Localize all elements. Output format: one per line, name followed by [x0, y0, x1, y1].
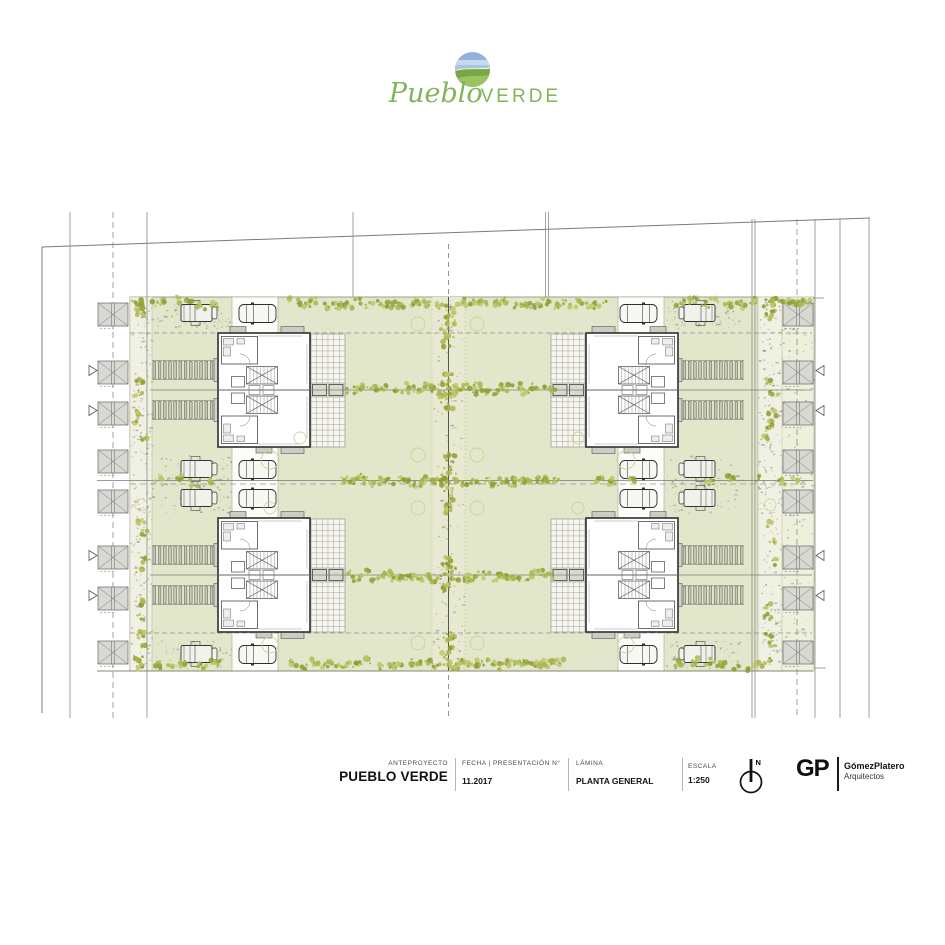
- site-plan-drawing: [0, 0, 945, 945]
- parked-car: [239, 488, 276, 510]
- patio-grid: [311, 334, 345, 447]
- firm-logo-divider: [837, 757, 839, 791]
- garage-bay: [783, 450, 813, 476]
- scale-label: ESCALA: [688, 763, 717, 770]
- parked-car: [239, 644, 276, 666]
- garage-bay: [783, 546, 813, 572]
- parked-car: [620, 459, 657, 481]
- parked-car: [620, 488, 657, 510]
- parked-car: [620, 303, 657, 325]
- titleblock-divider: [682, 758, 683, 791]
- garage-bay: [98, 641, 128, 667]
- north-arrow-icon: N: [733, 752, 773, 796]
- garage-bay: [98, 402, 128, 428]
- parked-car: [620, 644, 657, 666]
- garage-bay: [783, 402, 813, 428]
- date-label: FECHA | PRESENTACIÓN N°: [462, 760, 560, 767]
- garage-bay: [98, 450, 128, 476]
- project-type-label: ANTEPROYECTO: [388, 760, 448, 767]
- parked-car: [239, 459, 276, 481]
- firm-subtitle: Arquitectos: [844, 772, 884, 781]
- titleblock-divider: [568, 758, 569, 791]
- parked-car: [239, 303, 276, 325]
- garage-bay: [783, 641, 813, 667]
- garage-bay: [783, 361, 813, 387]
- garage-bay: [98, 361, 128, 387]
- firm-logo: GP: [796, 755, 829, 783]
- sheet-label: LÁMINA: [576, 760, 603, 767]
- date-value: 11.2017: [462, 776, 492, 786]
- garage-bay: [98, 303, 128, 329]
- patio-grid: [551, 519, 585, 632]
- patio-grid: [311, 519, 345, 632]
- project-name: PUEBLO VERDE: [339, 769, 448, 784]
- north-label: N: [756, 758, 761, 767]
- garage-bay: [783, 490, 813, 516]
- garage-bay: [98, 546, 128, 572]
- sheet-name: PLANTA GENERAL: [576, 776, 653, 786]
- garage-bay: [783, 587, 813, 613]
- firm-name: GómezPlatero: [844, 761, 905, 771]
- scale-value: 1:250: [688, 775, 710, 785]
- titleblock-divider: [455, 758, 456, 791]
- garage-bay: [98, 587, 128, 613]
- garage-bay: [98, 490, 128, 516]
